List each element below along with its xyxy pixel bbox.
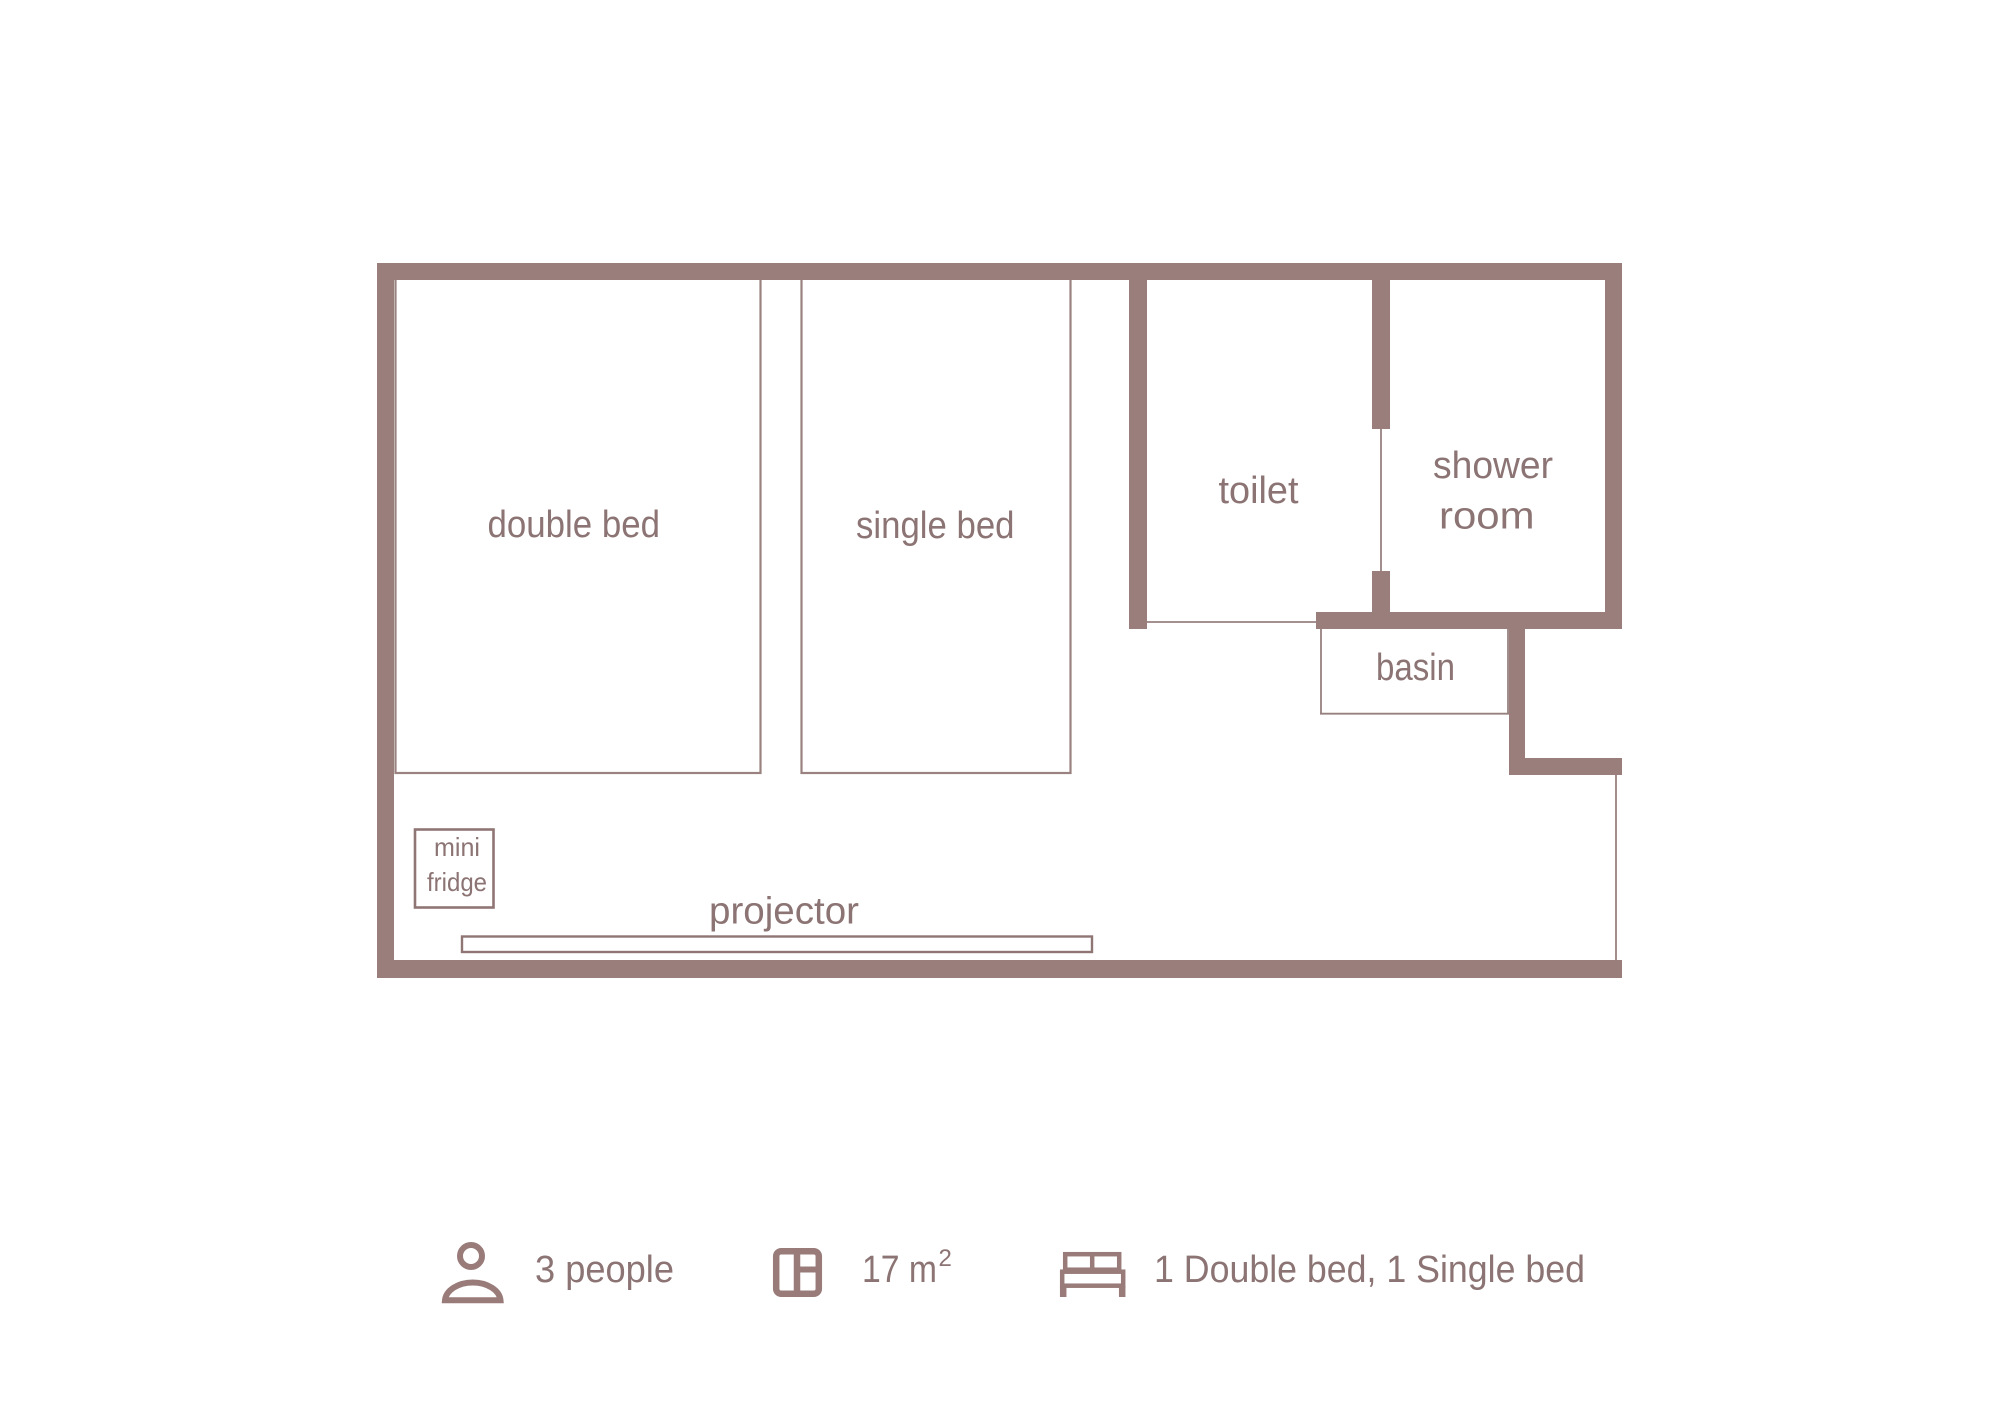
svg-text:double bed: double bed [488, 504, 661, 546]
svg-text:2: 2 [939, 1245, 952, 1272]
svg-text:room: room [1439, 496, 1535, 538]
svg-text:3 people: 3 people [535, 1249, 674, 1291]
svg-text:17 m: 17 m [862, 1249, 937, 1291]
svg-text:1 Double bed, 1 Single bed: 1 Double bed, 1 Single bed [1154, 1249, 1585, 1291]
svg-text:toilet: toilet [1219, 470, 1299, 512]
svg-text:projector: projector [709, 891, 859, 933]
svg-text:basin: basin [1376, 647, 1455, 689]
svg-text:shower: shower [1433, 445, 1553, 487]
svg-text:mini: mini [434, 832, 480, 862]
svg-text:single bed: single bed [856, 505, 1015, 547]
svg-text:fridge: fridge [427, 867, 487, 897]
